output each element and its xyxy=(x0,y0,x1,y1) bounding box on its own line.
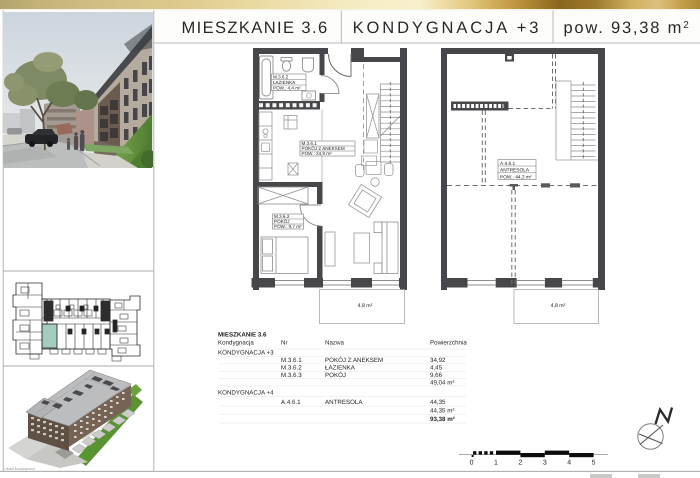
svg-text:9,66: 9,66 xyxy=(430,372,443,379)
svg-text:4: 4 xyxy=(567,460,571,467)
svg-text:KONDYGNACJA +3: KONDYGNACJA +3 xyxy=(218,349,274,356)
svg-text:Nr: Nr xyxy=(281,340,288,347)
svg-text:1: 1 xyxy=(494,460,498,467)
svg-text:A.4.6.1: A.4.6.1 xyxy=(281,399,301,406)
svg-text:ANTRESOLA: ANTRESOLA xyxy=(500,168,530,174)
svg-text:POW.: 9,7 m²: POW.: 9,7 m² xyxy=(274,224,302,229)
svg-text:Kondygnacja: Kondygnacja xyxy=(218,340,254,347)
svg-text:34,92: 34,92 xyxy=(430,357,446,364)
svg-text:ŁAZIENKA: ŁAZIENKA xyxy=(325,365,356,372)
svg-text:M.3.6.1: M.3.6.1 xyxy=(281,357,302,364)
svg-text:M.3.6.3: M.3.6.3 xyxy=(281,372,302,379)
svg-text:POKÓJ Z ANEKSEM: POKÓJ Z ANEKSEM xyxy=(325,356,383,364)
svg-text:Powierzchnia: Powierzchnia xyxy=(430,340,467,347)
svg-text:M.3.6.2: M.3.6.2 xyxy=(273,74,289,79)
svg-text:ŁAZIENKA: ŁAZIENKA xyxy=(273,80,296,85)
svg-text:pow. 93,38 m2: pow. 93,38 m2 xyxy=(563,19,690,37)
svg-text:ANTRESOLA: ANTRESOLA xyxy=(325,399,363,406)
svg-text:44,35: 44,35 xyxy=(430,399,446,406)
svg-text:44,35 m²: 44,35 m² xyxy=(430,407,454,414)
svg-text:Nazwa: Nazwa xyxy=(325,340,344,347)
svg-text:KONDYGNACJA +3: KONDYGNACJA +3 xyxy=(353,19,542,37)
svg-text:M.3.6.2: M.3.6.2 xyxy=(281,365,302,372)
svg-text:MIESZKANIE 3.6: MIESZKANIE 3.6 xyxy=(218,332,267,339)
svg-text:4,8 m²: 4,8 m² xyxy=(358,303,373,309)
svg-text:POW.: 34,9 m²: POW.: 34,9 m² xyxy=(302,151,333,156)
svg-text:4,8 m²: 4,8 m² xyxy=(551,303,566,309)
svg-text:A.4.6.1: A.4.6.1 xyxy=(500,161,516,167)
svg-text:3: 3 xyxy=(543,460,547,467)
svg-text:POW.: 4,4 m²: POW.: 4,4 m² xyxy=(273,85,301,90)
svg-text:49,04 m²: 49,04 m² xyxy=(430,379,454,386)
svg-text:KONDYGNACJA +4: KONDYGNACJA +4 xyxy=(218,389,274,396)
svg-text:2: 2 xyxy=(518,460,522,467)
svg-text:MIESZKANIE 3.6: MIESZKANIE 3.6 xyxy=(181,19,328,37)
svg-text:0: 0 xyxy=(470,460,474,467)
svg-text:93,38 m²: 93,38 m² xyxy=(430,416,455,423)
svg-text:POKÓJ: POKÓJ xyxy=(325,371,346,379)
svg-text:4,45: 4,45 xyxy=(430,365,443,372)
svg-text:POW.: 44,3 m²: POW.: 44,3 m² xyxy=(500,174,532,180)
svg-text:Uklad kondygnacji: Uklad kondygnacji xyxy=(4,467,35,471)
svg-text:5: 5 xyxy=(592,460,596,467)
